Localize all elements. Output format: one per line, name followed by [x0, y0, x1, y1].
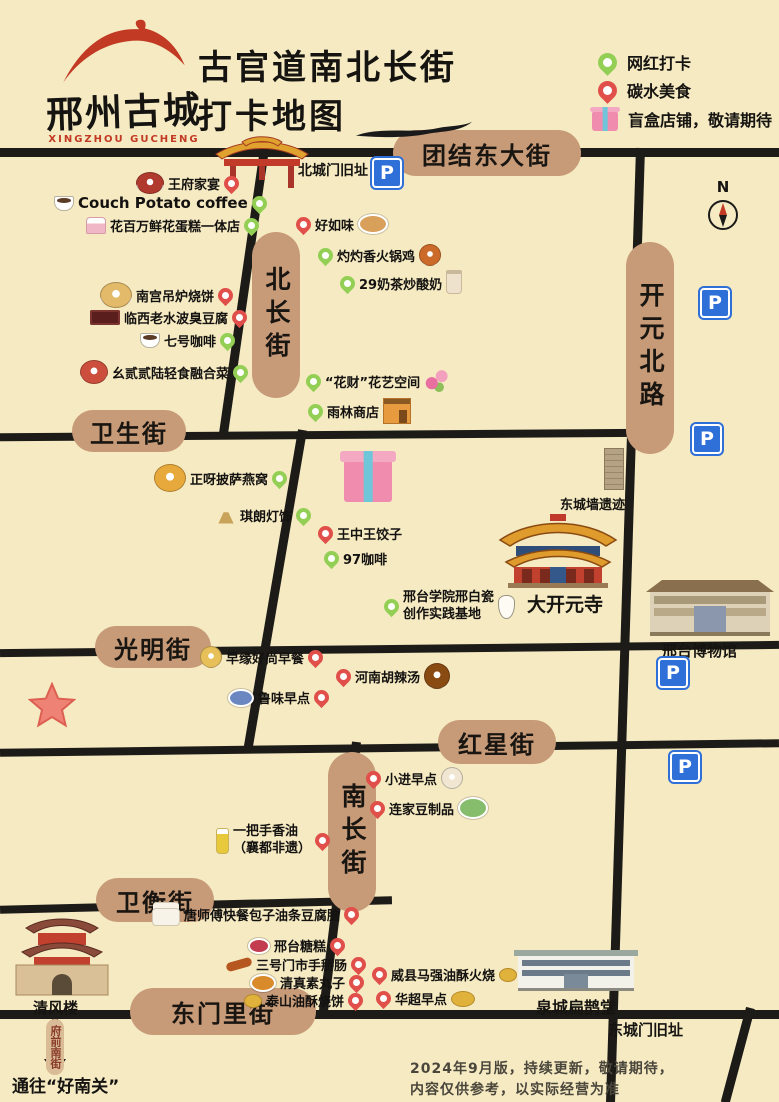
red-pin-icon — [369, 964, 390, 985]
poi-pizza-yanwo: 正呀披萨燕窝 — [154, 464, 287, 492]
green-pin-icon — [303, 370, 324, 391]
poi-label: 七号咖啡 — [164, 331, 216, 350]
title-line2: 打卡地图 — [198, 93, 346, 142]
title-line1: 古官道南北长街 — [198, 44, 474, 93]
poi-label: 雨林商店 — [327, 402, 379, 421]
sausage-icon — [225, 957, 252, 973]
red-pin-icon — [221, 172, 242, 193]
street-pill-guangming: 光明街 — [95, 626, 211, 668]
road-bottom-right-diagonal — [721, 1007, 755, 1102]
red-pin-icon — [367, 797, 388, 818]
poi-henan-hulatang: 河南胡辣汤 — [336, 663, 450, 689]
poi-coffee-97: 97咖啡 — [324, 549, 387, 568]
poi-label: “花财”花艺空间 — [325, 372, 420, 391]
compass: N — [706, 178, 740, 236]
poi-wangfu-jiayan: 王府家宴 — [136, 172, 239, 194]
legend-label: 盲盒店铺，敬请期待 — [628, 107, 772, 131]
poi-label: 花百万鲜花蛋糕一体店 — [110, 216, 240, 235]
legend-label: 网红打卡 — [627, 50, 691, 74]
street-pill-weisheng: 卫生街 — [72, 410, 186, 452]
poi-haoruwei: 好如味 — [296, 214, 388, 234]
parking-sign: P — [700, 288, 730, 318]
red-pin-icon — [363, 767, 384, 788]
fuqian-street-label: 府前南街 — [46, 1019, 64, 1075]
city-logo: 邢州古城 XINGZHOU GUCHENG — [46, 16, 202, 145]
green-pin-icon — [249, 192, 270, 213]
compass-icon — [706, 196, 740, 232]
poi-yibashou-oil: 一把手香油（襄都非遗） — [216, 824, 330, 858]
red-pin-icon — [327, 935, 348, 956]
to-haonanguan-label: 通往“好南关” — [12, 1072, 119, 1097]
logo-chinese-name: 邢州古城 — [45, 91, 202, 133]
green-pin-icon — [381, 596, 402, 617]
temple-label: 大开元寺 — [527, 590, 603, 617]
cup-icon — [140, 333, 160, 348]
poi-huacai-flower: “花财”花艺空间 — [306, 370, 450, 392]
parking-sign: P — [372, 158, 402, 188]
poi-lianjia-tofu: 连家豆制品 — [370, 797, 488, 819]
red-pin-icon — [333, 665, 354, 686]
red-pin-icon — [373, 988, 394, 1009]
round-icon — [424, 663, 450, 689]
round-icon — [80, 360, 108, 384]
qingfeng-tower-illustration — [8, 912, 116, 998]
shop-icon — [383, 398, 411, 424]
street-label: 北长街 — [258, 266, 294, 365]
poi-wangzhongwang-jiaozi: 王中王饺子 — [318, 524, 402, 543]
ink-swoosh-icon — [354, 119, 474, 143]
compass-north-label: N — [706, 178, 740, 196]
east-gate-label: 东城门旧址 — [608, 1019, 683, 1040]
poi-sanhao-shoubaichang: 三号门市手掰肠 — [226, 955, 366, 974]
oval-icon — [250, 974, 276, 992]
poi-zhuozhuoxiang: 灼灼香火锅鸡 — [318, 244, 441, 266]
quancheng-hall-illustration — [512, 948, 640, 992]
poi-yulin-shop: 雨林商店 — [308, 398, 411, 424]
round-icon — [100, 282, 132, 308]
legend-label: 碳水美食 — [627, 78, 691, 102]
poi-qilang-lighting: 琪朗灯饰 — [216, 506, 311, 525]
poi-label: 琪朗灯饰 — [240, 506, 292, 525]
poi-huachao-breakfast: 华超早点 — [376, 989, 475, 1008]
red-pin-icon — [215, 284, 236, 305]
round-icon — [200, 646, 222, 668]
poi-luwei-breakfast: 鲁味早点 — [228, 688, 329, 707]
green-pin-icon — [217, 330, 238, 351]
poi-label: 灼灼香火锅鸡 — [337, 246, 415, 265]
street-label: 光明街 — [114, 630, 192, 665]
street-label: 开元北路 — [632, 282, 668, 414]
version-note-line2: 内容仅供参考，以实际经营为准 — [410, 1079, 620, 1099]
red-pin-icon — [348, 954, 369, 975]
green-pin-icon — [269, 467, 290, 488]
red-star-icon — [28, 682, 76, 728]
poi-couch-potato-coffee: Couch Potato coffee — [54, 194, 267, 212]
poi-label: 邢台糖糕 — [274, 936, 326, 955]
coin-icon — [499, 968, 517, 982]
museum-illustration — [642, 576, 778, 638]
green-pin-icon — [594, 49, 621, 76]
red-pin-icon — [312, 830, 333, 851]
green-pin-icon — [321, 548, 342, 569]
coin-icon — [451, 991, 475, 1007]
parking-sign: P — [670, 752, 700, 782]
poi-taishan-shaobing: 泰山油酥烧饼 — [244, 991, 363, 1010]
poi-label: 清真素丸子 — [280, 973, 345, 992]
giftbox-icon — [344, 460, 392, 502]
red-pin-icon — [311, 687, 332, 708]
poi-label: 华超早点 — [395, 989, 447, 1008]
poi-label: 鲁味早点 — [258, 688, 310, 707]
poi-label: 好如味 — [315, 215, 354, 234]
street-label: 南长街 — [334, 783, 370, 882]
cake-icon — [86, 217, 106, 234]
parking-sign: P — [658, 658, 688, 688]
city-wall-relic-icon — [604, 448, 624, 490]
coin-icon — [244, 994, 262, 1008]
poi-label: 小进早点 — [385, 769, 437, 788]
red-pin-icon — [346, 972, 367, 993]
wall-relic-label: 东城墙遗迹 — [560, 494, 625, 513]
red-pin-icon — [229, 307, 250, 328]
lamp-icon — [216, 508, 236, 524]
poi-linxi-choudoufu: 临西老水波臭豆腐 — [90, 308, 247, 327]
poi-label: 一把手香油（襄都非遗） — [233, 824, 311, 858]
steamer-icon — [152, 908, 180, 926]
oval-icon — [228, 689, 254, 707]
poi-zaoyuan-breakfast: 早缘好尚早餐 — [200, 646, 323, 668]
xingzhou-guide-map: 团结东大街 北长街 开元北路 卫生街 光明街 红星街 南长街 卫衡街 东门里街 … — [0, 0, 779, 1102]
sign-icon — [90, 310, 120, 325]
legend-item-blindbox: 盲盒店铺，敬请期待 — [592, 106, 772, 131]
poi-huabaiwan-cake: 花百万鲜花蛋糕一体店 — [86, 216, 259, 235]
poi-xingtai-xueyuan: 邢台学院邢白瓷创作实践基地 — [384, 590, 515, 624]
north-gate-label: 北城门旧址 — [298, 160, 368, 180]
road-hongxing-street — [0, 739, 779, 757]
red-pin-icon — [305, 646, 326, 667]
oval-icon — [248, 938, 270, 954]
poi-label: 唐师傅快餐包子油条豆腐脑 — [184, 905, 340, 924]
map-title: 古官道南北长街 打卡地图 — [198, 44, 474, 143]
green-pin-icon — [241, 215, 262, 236]
poi-label: 早缘好尚早餐 — [226, 648, 304, 667]
logo-roof-icon — [55, 16, 193, 90]
red-pin-icon — [594, 77, 621, 104]
street-pill-beichang: 北长街 — [252, 232, 300, 398]
round-icon — [136, 172, 164, 194]
street-label: 红星街 — [458, 725, 536, 760]
green-pin-icon — [337, 272, 358, 293]
red-pin-icon — [341, 903, 362, 924]
legend-item-hotspot: 网红打卡 — [598, 50, 691, 74]
quancheng-hall-label: 泉城扁鹊堂 — [536, 994, 616, 1018]
round-icon — [154, 464, 186, 492]
street-label: 卫生街 — [90, 414, 168, 449]
poi-nangong-shaobing: 南宫吊炉烧饼 — [100, 282, 233, 308]
poi-qihao-coffee: 七号咖啡 — [140, 331, 235, 350]
poi-qingzhen-suwanzi: 清真素丸子 — [250, 973, 364, 992]
poi-label: 王府家宴 — [168, 174, 220, 193]
red-pin-icon — [293, 213, 314, 234]
road-tuanjie-east-street — [0, 148, 779, 157]
poi-naicha-29: 29奶茶炒酸奶 — [340, 272, 462, 294]
vase-icon — [498, 595, 515, 619]
poi-yao-2226: 幺贰贰陆轻食融合菜 — [80, 360, 248, 384]
drink-icon — [446, 272, 462, 294]
green-pin-icon — [315, 244, 336, 265]
green-pin-icon — [305, 400, 326, 421]
poi-label: 幺贰贰陆轻食融合菜 — [112, 363, 229, 382]
flower-icon — [424, 370, 450, 392]
round-icon — [441, 767, 463, 789]
legend-item-food: 碳水美食 — [598, 78, 691, 102]
poi-label: 泰山油酥烧饼 — [266, 991, 344, 1010]
qingfeng-tower-label: 清风楼 — [33, 997, 78, 1018]
poi-label: 河南胡辣汤 — [355, 667, 420, 686]
street-pill-hongxing: 红星街 — [438, 720, 556, 764]
poi-label: 南宫吊炉烧饼 — [136, 286, 214, 305]
poi-label: 威县马强油酥火烧 — [391, 965, 495, 984]
poi-weixian-huoshao: 威县马强油酥火烧 — [372, 965, 517, 984]
poi-xiaojin-breakfast: 小进早点 — [366, 767, 463, 789]
poi-label: 邢台学院邢白瓷创作实践基地 — [403, 590, 494, 624]
road-dongmenli-street — [0, 1010, 779, 1019]
oval-icon — [358, 214, 388, 234]
poi-label: 临西老水波臭豆腐 — [124, 308, 228, 327]
cup-icon — [54, 196, 74, 211]
poi-label: 连家豆制品 — [389, 799, 454, 818]
poi-label: 正呀披萨燕窝 — [190, 469, 268, 488]
red-pin-icon — [315, 523, 336, 544]
poi-xingtai-tanggao: 邢台糖糕 — [248, 936, 345, 955]
poi-label: 29奶茶炒酸奶 — [359, 274, 442, 293]
street-pill-kaiyuan: 开元北路 — [626, 242, 674, 454]
bottle-icon — [216, 828, 229, 854]
poi-label: Couch Potato coffee — [78, 194, 248, 212]
parking-sign: P — [692, 424, 722, 454]
poi-label: 三号门市手掰肠 — [256, 955, 347, 974]
poi-label: 97咖啡 — [343, 549, 387, 568]
dakaiyuan-temple-illustration — [492, 512, 624, 588]
oval-icon — [458, 797, 488, 819]
poi-label: 王中王饺子 — [337, 524, 402, 543]
green-pin-icon — [230, 361, 251, 382]
poi-tangshifu-kuaican: 唐师傅快餐包子油条豆腐脑 — [152, 902, 359, 926]
green-pin-icon — [293, 505, 314, 526]
round-icon — [419, 244, 441, 266]
version-note-line1: 2024年9月版，持续更新，敬请期待， — [410, 1058, 674, 1078]
red-pin-icon — [345, 990, 366, 1011]
giftbox-icon — [592, 111, 618, 131]
